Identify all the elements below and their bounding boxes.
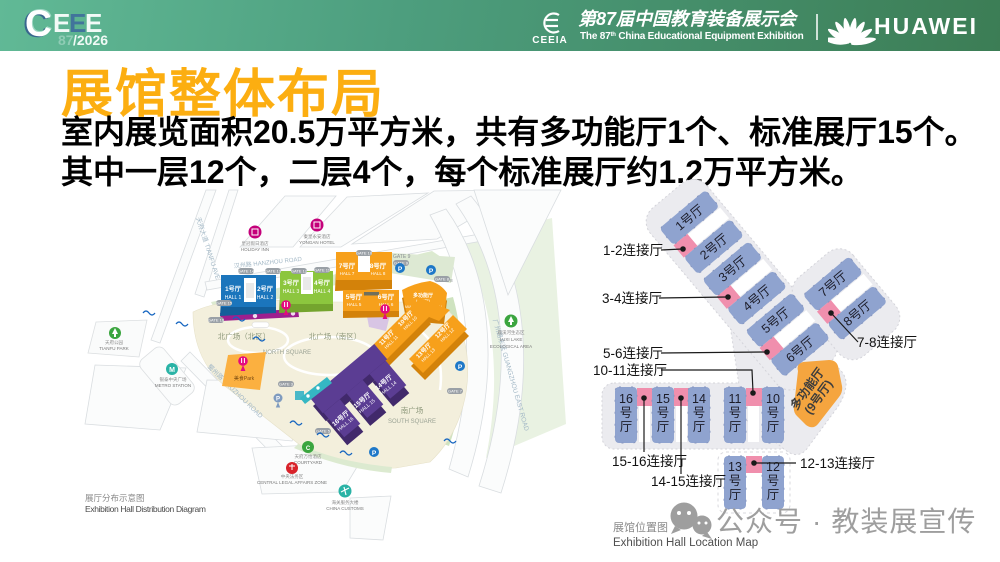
svg-text:展馆位置图: 展馆位置图 (613, 520, 668, 534)
svg-text:8号厅: 8号厅 (370, 261, 387, 270)
svg-text:HALL 4: HALL 4 (314, 289, 331, 295)
svg-text:P: P (429, 268, 434, 275)
svg-text:13号厅: 13号厅 (728, 460, 742, 502)
svg-text:YONGAN HOTEL: YONGAN HOTEL (299, 240, 335, 245)
svg-text:NORTH SQUARE: NORTH SQUARE (263, 350, 311, 356)
svg-text:METRO STATION: METRO STATION (155, 383, 191, 388)
svg-text:中央法务区: 中央法务区 (281, 473, 304, 480)
svg-text:GATE 3: GATE 3 (279, 382, 294, 387)
svg-text:海关服务大楼: 海关服务大楼 (332, 499, 359, 506)
svg-text:GATE 9: GATE 9 (393, 254, 411, 260)
svg-text:GATE 12: GATE 12 (291, 269, 308, 274)
svg-text:14-15连接厅: 14-15连接厅 (651, 473, 726, 489)
svg-text:7-8连接厅: 7-8连接厅 (857, 334, 917, 350)
svg-text:10-11连接厅: 10-11连接厅 (593, 362, 667, 378)
svg-text:M: M (169, 367, 175, 374)
svg-text:5-6连接厅: 5-6连接厅 (603, 345, 663, 361)
svg-text:HALL 5: HALL 5 (347, 302, 362, 307)
svg-text:皇冠假日酒店: 皇冠假日酒店 (242, 240, 269, 247)
svg-text:HOLIDAY INN: HOLIDAY INN (241, 247, 269, 252)
svg-text:P: P (372, 450, 377, 457)
svg-text:鹿溪河生态区: 鹿溪河生态区 (498, 329, 525, 336)
svg-text:P: P (398, 266, 403, 273)
svg-text:HALL 8: HALL 8 (371, 271, 386, 276)
svg-text:COURTYARD: COURTYARD (294, 460, 323, 465)
svg-text:公众号·教装展宣传: 公众号·教装展宣传 (716, 506, 976, 537)
svg-text:2号厅: 2号厅 (257, 285, 274, 293)
svg-text:GATE 13: GATE 13 (265, 269, 282, 274)
svg-text:HALL 7: HALL 7 (340, 271, 355, 276)
svg-text:GATE 5: GATE 5 (316, 429, 331, 434)
svg-text:GATE 11: GATE 11 (314, 268, 331, 273)
svg-text:12号厅: 12号厅 (766, 460, 780, 502)
svg-text:10号厅: 10号厅 (766, 392, 780, 434)
svg-text:C: C (306, 446, 311, 452)
svg-text:北广场（北区）: 北广场（北区） (218, 331, 271, 341)
svg-text:GATE 10: GATE 10 (356, 251, 373, 256)
svg-text:ECOLOGICAL AREA: ECOLOGICAL AREA (490, 344, 532, 349)
svg-text:秦皇永安酒店: 秦皇永安酒店 (304, 233, 331, 240)
svg-text:1-2连接厅: 1-2连接厅 (603, 242, 663, 258)
svg-text:7号厅: 7号厅 (339, 261, 356, 270)
svg-text:GATE 16: GATE 16 (208, 318, 225, 323)
svg-text:5号厅: 5号厅 (346, 292, 363, 301)
svg-text:TIANFU PARK: TIANFU PARK (99, 346, 128, 351)
svg-text:16号厅: 16号厅 (619, 392, 633, 434)
svg-text:4号厅: 4号厅 (314, 279, 331, 287)
svg-text:GATE 15: GATE 15 (216, 301, 233, 306)
svg-text:3号厅: 3号厅 (283, 279, 300, 287)
svg-text:CENTRAL LEGAL AFFAIRS ZONE: CENTRAL LEGAL AFFAIRS ZONE (257, 480, 327, 485)
svg-text:Exhibition Hall Location Map: Exhibition Hall Location Map (613, 537, 758, 549)
svg-text:天府万怡酒店: 天府万怡酒店 (295, 453, 322, 460)
svg-text:12-13连接厅: 12-13连接厅 (800, 455, 875, 471)
svg-text:3-4连接厅: 3-4连接厅 (602, 290, 662, 306)
svg-text:Exhibition Hall Distribution D: Exhibition Hall Distribution Diagram (85, 504, 206, 514)
svg-text:美食Park: 美食Park (234, 375, 255, 382)
svg-text:SOUTH SQUARE: SOUTH SQUARE (388, 419, 436, 425)
svg-text:LUXI LAKE: LUXI LAKE (500, 337, 523, 342)
svg-text:6号厅: 6号厅 (378, 292, 395, 301)
svg-text:银泰中央广场: 银泰中央广场 (160, 376, 187, 383)
svg-text:南广场: 南广场 (401, 405, 424, 415)
svg-text:HALL 2: HALL 2 (257, 295, 274, 301)
svg-text:15号厅: 15号厅 (656, 392, 670, 434)
svg-text:展厅分布示意图: 展厅分布示意图 (85, 493, 145, 503)
svg-text:CHINA CUSTOMS: CHINA CUSTOMS (326, 506, 363, 511)
svg-text:多功能厅: 多功能厅 (413, 292, 433, 299)
svg-text:北广场（南区）: 北广场（南区） (309, 331, 362, 341)
svg-text:GATE 14: GATE 14 (238, 269, 255, 274)
svg-text:GATE 7: GATE 7 (448, 389, 463, 394)
svg-text:1号厅: 1号厅 (225, 285, 242, 293)
svg-text:天府公园: 天府公园 (105, 339, 123, 346)
svg-text:GATE 8: GATE 8 (435, 277, 450, 282)
svg-text:15-16连接厅: 15-16连接厅 (612, 453, 687, 469)
svg-text:P: P (458, 364, 463, 371)
svg-text:P: P (276, 397, 280, 403)
svg-text:HALL 3: HALL 3 (283, 289, 300, 295)
svg-text:14号厅: 14号厅 (692, 392, 706, 434)
svg-text:11号厅: 11号厅 (729, 392, 742, 434)
